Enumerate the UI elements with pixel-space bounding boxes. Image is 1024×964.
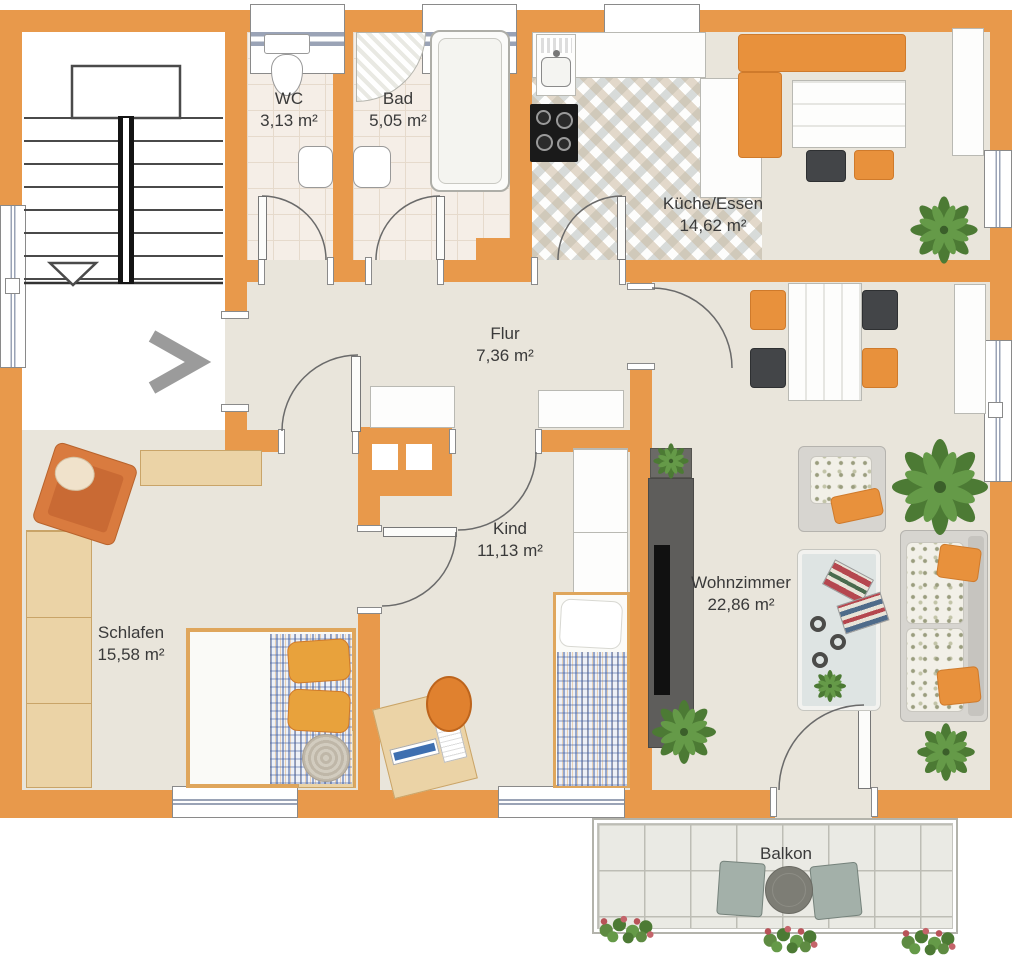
room-label-kueche: Küche/Essen 14,62 m²: [613, 193, 813, 237]
sofa-throw: [936, 543, 982, 583]
wall-bottom-left: [0, 790, 775, 818]
wc-door-leaf: [258, 196, 267, 260]
sink-basin: [541, 57, 571, 87]
door-jamb: [770, 787, 777, 817]
door-jamb: [258, 257, 265, 285]
door-jamb: [365, 257, 372, 285]
sofa-throw: [936, 666, 982, 706]
room-name: Balkon: [706, 843, 866, 865]
window-kind: [498, 786, 625, 818]
room-name: WC: [239, 88, 339, 110]
monitor: [389, 738, 439, 765]
balcony-chair: [716, 860, 766, 917]
room-label-flur: Flur 7,36 m²: [425, 323, 585, 367]
wall-bottom-right: [872, 790, 1012, 818]
coaster: [830, 634, 846, 650]
door-jamb: [278, 429, 285, 454]
room-name: Küche/Essen: [613, 193, 813, 215]
door-jamb: [449, 429, 456, 454]
stairwell-floor: [22, 32, 225, 430]
wc-sink: [298, 146, 333, 188]
room-label-wc: WC 3,13 m²: [239, 88, 339, 132]
burner: [536, 134, 553, 151]
dining-chair-orange: [854, 150, 894, 180]
chair-orange: [750, 290, 786, 330]
kitchen-tall-cabinet: [952, 28, 984, 156]
room-area: 3,13 m²: [239, 110, 339, 132]
balcony-chair: [809, 862, 862, 921]
room-name: Flur: [425, 323, 585, 345]
shaft-opening-1: [372, 444, 398, 470]
window-handle-wohnzimmer: [988, 402, 1003, 418]
chair-dark: [862, 290, 898, 330]
room-label-schlafen: Schlafen 15,58 m²: [50, 622, 212, 666]
door-jamb: [531, 257, 538, 285]
door-jamb: [352, 429, 359, 454]
wall-kueche-wohnzimmer: [652, 260, 990, 282]
hall-cabinet: [370, 386, 455, 428]
desk-chair: [426, 676, 472, 732]
window-schlafen: [172, 786, 298, 818]
wall-pillar: [476, 238, 532, 282]
round-rug: [302, 734, 350, 782]
planter-box: [650, 448, 692, 478]
dresser: [140, 450, 262, 486]
wall-stairwell-upper: [225, 32, 247, 318]
door-jamb: [437, 257, 444, 285]
bed-pillow: [287, 638, 352, 684]
dining-table: [792, 80, 906, 148]
chair-orange: [862, 348, 898, 388]
burner: [536, 110, 551, 125]
sideboard: [954, 284, 986, 414]
door-jamb: [221, 311, 249, 319]
door-jamb: [221, 404, 249, 412]
burner: [556, 112, 573, 129]
kids-bed-duvet: [557, 652, 627, 786]
window-handle-stairwell: [5, 278, 20, 294]
wall-hall-c: [440, 260, 478, 282]
room-name: Wohnzimmer: [640, 572, 842, 594]
room-area: 22,86 m²: [640, 594, 842, 616]
burner: [557, 137, 571, 151]
kitchen-sink-unit: [536, 34, 576, 96]
balcony-door-sill: [775, 790, 872, 818]
hall-cabinet: [538, 390, 624, 428]
room-label-wohnzimmer: Wohnzimmer 22,86 m²: [640, 572, 842, 616]
tv: [654, 545, 670, 695]
coaster: [810, 616, 826, 632]
bad-door-leaf: [436, 196, 445, 260]
door-jamb: [619, 257, 626, 285]
door-jamb: [535, 429, 542, 454]
room-name: Kind: [430, 518, 590, 540]
dining-chair-dark: [806, 150, 846, 182]
door-jamb: [357, 525, 382, 532]
room-area: 7,36 m²: [425, 345, 585, 367]
room-name: Bad: [348, 88, 448, 110]
wall-hall-b: [330, 260, 370, 282]
balcony-table: [765, 866, 813, 914]
wall-schlafen-kind-lower: [358, 612, 380, 790]
wall-left: [0, 10, 22, 818]
monitor-screen: [393, 743, 436, 761]
schlafen-door-leaf: [351, 356, 361, 432]
floor-plan: WC 3,13 m² Bad 5,05 m² Küche/Essen 14,62…: [0, 0, 1024, 964]
room-label-kind: Kind 11,13 m²: [430, 518, 590, 562]
room-area: 11,13 m²: [430, 540, 590, 562]
door-jamb: [627, 363, 655, 370]
room-name: Schlafen: [50, 622, 212, 644]
door-jamb: [327, 257, 334, 285]
wall-flur-bottom-a: [225, 430, 283, 452]
chair-dark: [750, 348, 786, 388]
work-table: [788, 283, 862, 401]
door-jamb: [871, 787, 878, 817]
bed-pillow: [287, 688, 351, 733]
room-label-balkon: Balkon: [706, 843, 866, 865]
room-area: 5,05 m²: [348, 110, 448, 132]
coaster: [812, 652, 828, 668]
wc-toilet-tank: [264, 34, 310, 54]
room-area: 14,62 m²: [613, 215, 813, 237]
balkon-door-leaf: [858, 703, 871, 789]
door-jamb: [357, 607, 382, 614]
bad-sink: [353, 146, 391, 188]
faucet: [553, 50, 560, 57]
window-kueche-right: [984, 150, 1012, 228]
dining-bench-left: [738, 72, 782, 158]
kids-bed-pillow: [559, 598, 623, 649]
room-label-bad: Bad 5,05 m²: [348, 88, 448, 132]
room-area: 15,58 m²: [50, 644, 212, 666]
door-jamb: [627, 283, 655, 290]
shaft-opening-2: [406, 444, 432, 470]
dining-bench-top: [738, 34, 906, 72]
